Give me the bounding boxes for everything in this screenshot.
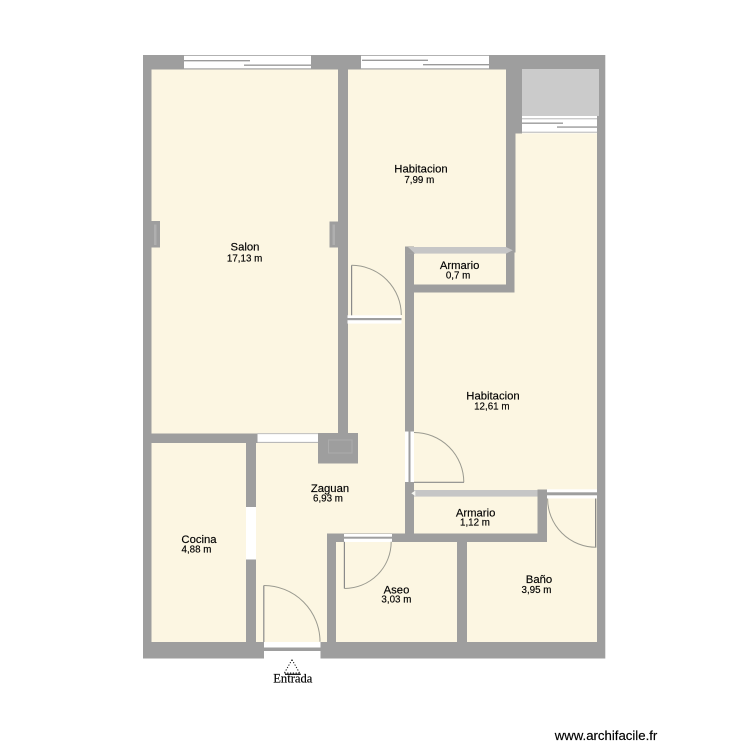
svg-text:6,93 m: 6,93 m: [313, 494, 343, 505]
svg-text:1,12 m: 1,12 m: [460, 517, 490, 528]
svg-text:3,95 m: 3,95 m: [522, 585, 552, 596]
svg-text:7,99 m: 7,99 m: [404, 175, 434, 186]
svg-text:0,7 m: 0,7 m: [446, 270, 471, 281]
svg-text:17,13 m: 17,13 m: [227, 253, 262, 264]
svg-text:12,61 m: 12,61 m: [474, 401, 509, 412]
svg-text:Habitacion: Habitacion: [394, 163, 447, 175]
svg-text:3,03 m: 3,03 m: [381, 595, 411, 606]
svg-text:4,88 m: 4,88 m: [182, 544, 212, 555]
svg-text:www.archifacile.fr: www.archifacile.fr: [554, 728, 658, 743]
svg-text:Entrada: Entrada: [273, 672, 313, 686]
svg-text:Salon: Salon: [231, 242, 260, 254]
